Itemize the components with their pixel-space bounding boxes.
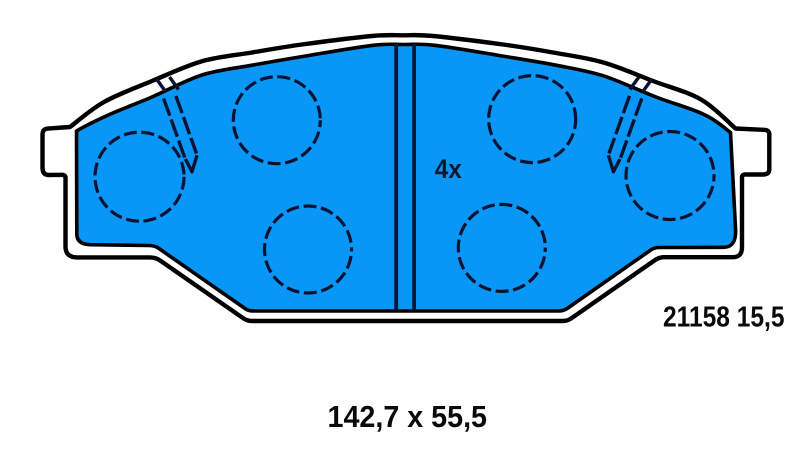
svg-text:4x: 4x [435, 154, 462, 184]
svg-text:142,7 x 55,5: 142,7 x 55,5 [328, 399, 488, 434]
svg-text:21158 15,5: 21158 15,5 [663, 302, 785, 334]
